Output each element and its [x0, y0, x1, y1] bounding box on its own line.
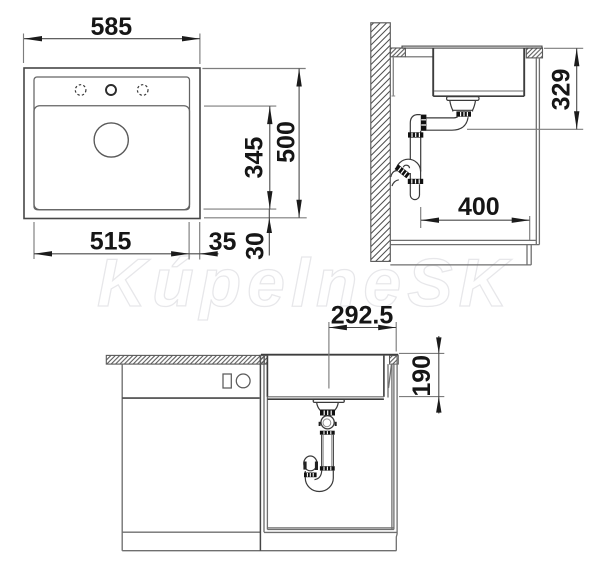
svg-text:35: 35 [209, 228, 237, 256]
svg-text:500: 500 [273, 121, 301, 163]
svg-text:30: 30 [241, 232, 269, 260]
svg-text:585: 585 [90, 13, 132, 41]
svg-text:KúpelneSK: KúpelneSK [97, 245, 514, 321]
svg-text:329: 329 [547, 69, 575, 111]
svg-text:190: 190 [408, 355, 436, 397]
svg-text:345: 345 [240, 137, 268, 179]
svg-text:515: 515 [90, 228, 132, 256]
svg-text:292.5: 292.5 [331, 302, 394, 330]
svg-text:400: 400 [458, 193, 500, 221]
